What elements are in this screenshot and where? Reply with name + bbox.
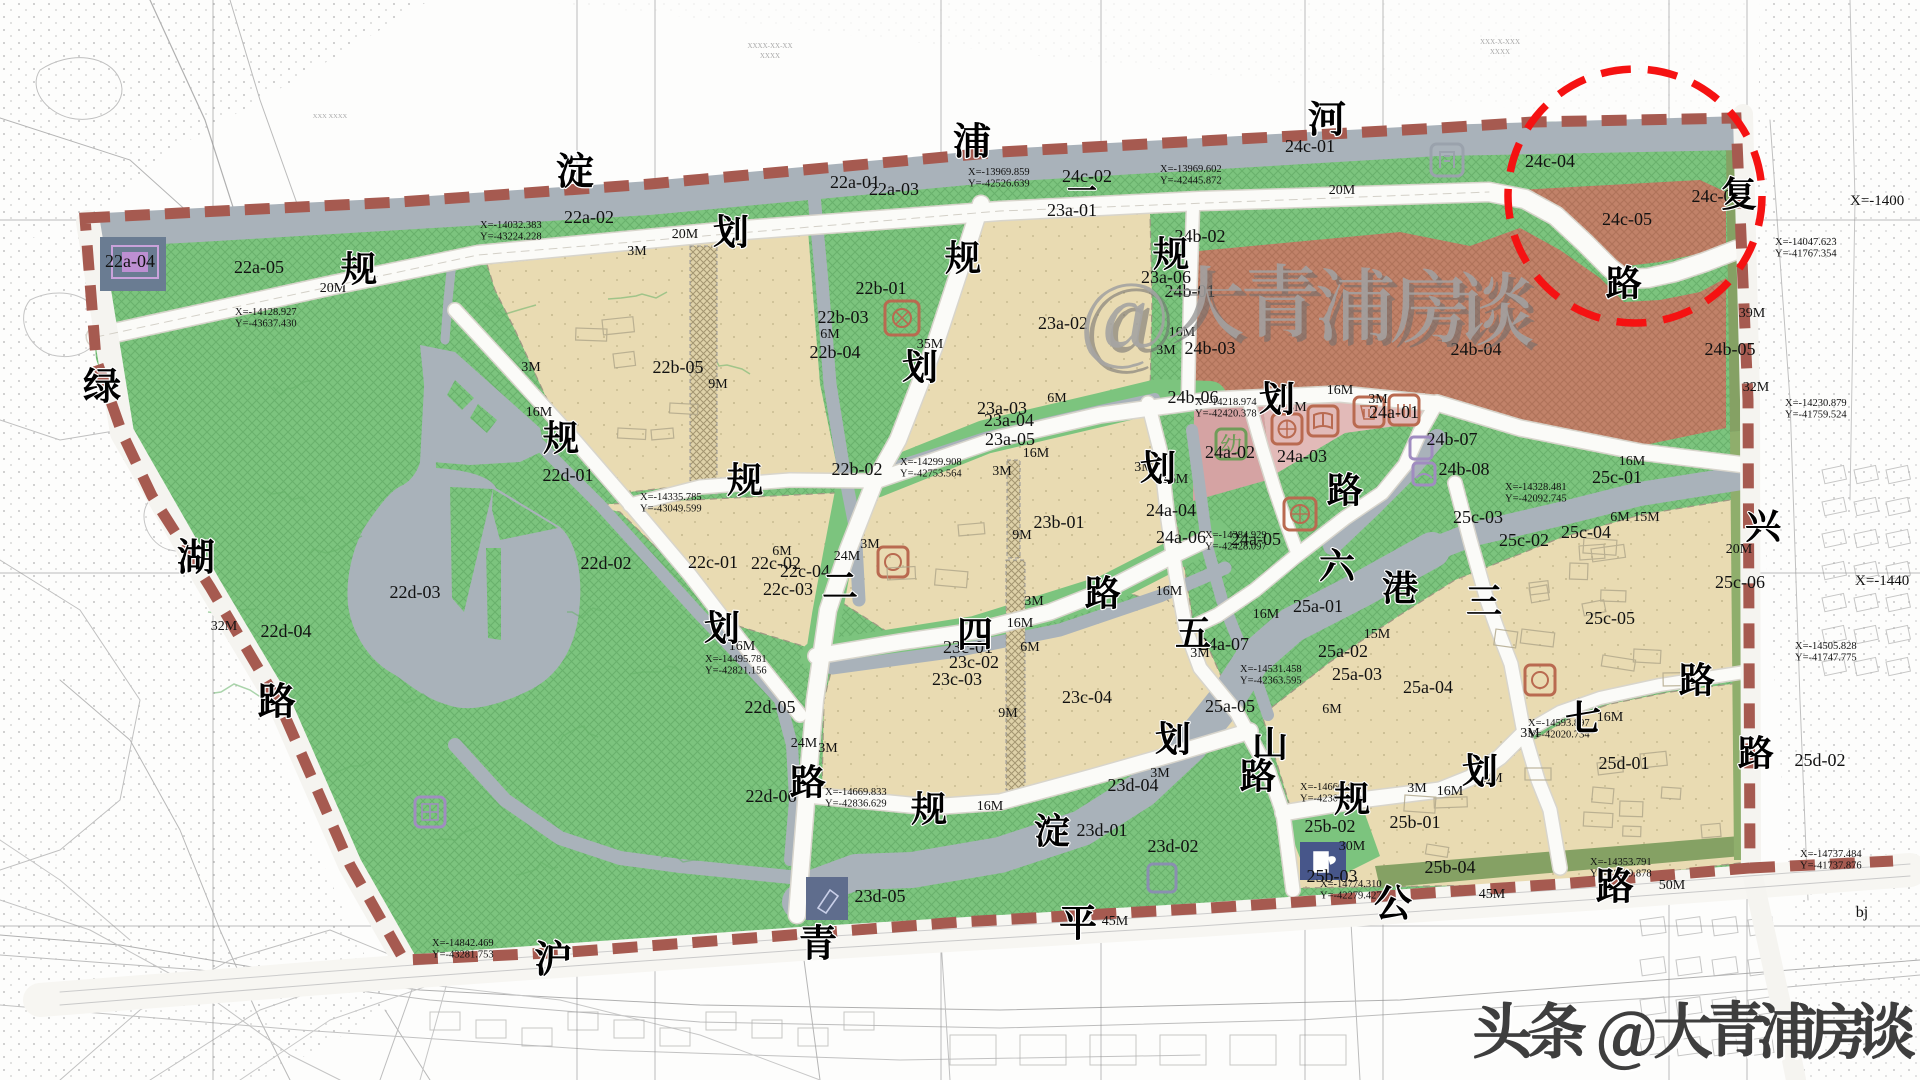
svg-text:X=-13969.859Y=-42526.639: X=-13969.859Y=-42526.639	[968, 167, 1030, 190]
svg-text:22b-01: 22b-01	[856, 278, 907, 298]
svg-text:XXXX-XX-XX: XXXX-XX-XX	[747, 42, 792, 50]
svg-text:25c-06: 25c-06	[1715, 572, 1765, 592]
svg-text:22a-02: 22a-02	[564, 207, 614, 227]
svg-text:X=-14774.310Y=-42279.427: X=-14774.310Y=-42279.427	[1320, 879, 1382, 902]
svg-text:25c-01: 25c-01	[1592, 467, 1642, 487]
svg-text:3M: 3M	[521, 360, 541, 375]
svg-text:22d-04: 22d-04	[261, 621, 312, 641]
svg-text:9M: 9M	[1012, 528, 1032, 543]
svg-text:24b-07: 24b-07	[1427, 429, 1478, 449]
svg-text:9M: 9M	[998, 706, 1018, 721]
svg-text:30M: 30M	[1339, 839, 1366, 854]
svg-text:6M: 6M	[1020, 640, 1040, 655]
svg-text:23a-02: 23a-02	[1038, 313, 1088, 333]
svg-text:25c-02: 25c-02	[1499, 530, 1549, 550]
svg-text:24M: 24M	[791, 736, 818, 751]
svg-text:16M: 16M	[1156, 584, 1183, 599]
svg-text:22b-02: 22b-02	[832, 459, 883, 479]
svg-text:X=-14669.833Y=-42836.629: X=-14669.833Y=-42836.629	[825, 787, 887, 810]
svg-text:25b-01: 25b-01	[1390, 812, 1441, 832]
svg-text:24b-08: 24b-08	[1439, 459, 1490, 479]
svg-text:23b-01: 23b-01	[1034, 512, 1085, 532]
svg-text:16M: 16M	[1023, 446, 1050, 461]
svg-text:16M: 16M	[526, 405, 553, 420]
svg-text:25b-02: 25b-02	[1305, 816, 1356, 836]
svg-text:X=-14384.929Y=-42428.097: X=-14384.929Y=-42428.097	[1205, 530, 1267, 553]
svg-text:6M: 6M	[1322, 702, 1342, 717]
svg-text:X=-14218.974Y=-42420.378: X=-14218.974Y=-42420.378	[1195, 397, 1257, 420]
svg-text:22b-04: 22b-04	[810, 342, 861, 362]
svg-text:3M: 3M	[860, 537, 880, 552]
svg-text:24b-03: 24b-03	[1185, 338, 1236, 358]
svg-text:X=-14047.623Y=-41767.354: X=-14047.623Y=-41767.354	[1775, 237, 1837, 260]
svg-text:45M: 45M	[1479, 887, 1506, 902]
svg-text:22d-01: 22d-01	[543, 465, 594, 485]
svg-text:20M: 20M	[672, 227, 699, 242]
svg-text:16M: 16M	[1437, 784, 1464, 799]
svg-text:24b-05: 24b-05	[1705, 339, 1756, 359]
svg-text:22d-06: 22d-06	[746, 786, 797, 806]
svg-text:XXXX: XXXX	[1490, 48, 1510, 56]
svg-text:X=-14495.781Y=-42821.156: X=-14495.781Y=-42821.156	[705, 654, 767, 677]
svg-text:6M: 6M	[1047, 391, 1067, 406]
svg-text:X=-14737.484Y=-41737.876: X=-14737.484Y=-41737.876	[1800, 849, 1862, 872]
svg-text:X=-14299.908Y=-42753.564: X=-14299.908Y=-42753.564	[900, 457, 962, 480]
svg-text:X=-14032.383Y=-43224.228: X=-14032.383Y=-43224.228	[480, 220, 542, 243]
svg-text:X=-13969.602Y=-42445.872: X=-13969.602Y=-42445.872	[1160, 164, 1222, 187]
svg-text:16M: 16M	[1253, 607, 1280, 622]
svg-text:3M: 3M	[1024, 594, 1044, 609]
svg-text:50M: 50M	[1659, 878, 1686, 893]
svg-text:22b-03: 22b-03	[818, 307, 869, 327]
svg-text:45M: 45M	[1102, 914, 1129, 929]
svg-text:22c-01: 22c-01	[688, 552, 738, 572]
svg-text:25d-02: 25d-02	[1795, 750, 1846, 770]
svg-text:X=-1400: X=-1400	[1850, 193, 1904, 209]
svg-text:25b-04: 25b-04	[1425, 857, 1476, 877]
svg-text:3M: 3M	[1150, 766, 1170, 781]
svg-text:23c-04: 23c-04	[1062, 687, 1112, 707]
svg-text:XXXX: XXXX	[760, 52, 780, 60]
svg-text:25c-04: 25c-04	[1561, 522, 1611, 542]
svg-text:3M: 3M	[627, 244, 647, 259]
svg-text:X=-14335.785Y=-43049.599: X=-14335.785Y=-43049.599	[640, 492, 702, 515]
svg-text:6M: 6M	[772, 544, 792, 559]
svg-text:24M: 24M	[834, 549, 861, 564]
svg-text:22c-03: 22c-03	[763, 579, 813, 599]
svg-text:24a-04: 24a-04	[1146, 500, 1196, 520]
svg-text:35M: 35M	[917, 337, 944, 352]
svg-text:25c-05: 25c-05	[1585, 608, 1635, 628]
svg-text:16M: 16M	[1327, 383, 1354, 398]
svg-text:25a-02: 25a-02	[1318, 641, 1368, 661]
svg-text:3M: 3M	[1368, 392, 1388, 407]
svg-text:23d-02: 23d-02	[1148, 836, 1199, 856]
svg-text:X=-14842.469Y=-43281.753: X=-14842.469Y=-43281.753	[432, 938, 494, 961]
svg-text:X=-14531.458Y=-42363.595: X=-14531.458Y=-42363.595	[1240, 664, 1302, 687]
svg-text:39M: 39M	[1739, 306, 1766, 321]
svg-text:3M: 3M	[818, 741, 838, 756]
svg-text:22d-02: 22d-02	[581, 553, 632, 573]
svg-text:24c-02: 24c-02	[1062, 166, 1112, 186]
svg-text:22d-03: 22d-03	[390, 582, 441, 602]
svg-text:32M: 32M	[211, 619, 238, 634]
svg-text:25a-03: 25a-03	[1332, 664, 1382, 684]
svg-text:16M: 16M	[1007, 616, 1034, 631]
svg-text:3M: 3M	[1407, 781, 1427, 796]
svg-text:20M: 20M	[1726, 542, 1753, 557]
svg-text:16M: 16M	[1597, 710, 1624, 725]
svg-text:23d-05: 23d-05	[855, 886, 906, 906]
svg-text:23d-01: 23d-01	[1077, 820, 1128, 840]
svg-text:25c-03: 25c-03	[1453, 507, 1503, 527]
svg-text:16M: 16M	[977, 799, 1004, 814]
svg-text:X=-1440: X=-1440	[1855, 573, 1909, 589]
svg-text:24c-05: 24c-05	[1602, 209, 1652, 229]
svg-text:bj: bj	[1856, 904, 1868, 921]
svg-text:XXX XXXX: XXX XXXX	[313, 113, 348, 120]
svg-text:22b-05: 22b-05	[653, 357, 704, 377]
svg-text:32M: 32M	[1743, 380, 1770, 395]
svg-text:3M: 3M	[992, 464, 1012, 479]
svg-text:24a-02: 24a-02	[1205, 442, 1255, 462]
svg-text:XXX-X-XXX: XXX-X-XXX	[1480, 38, 1520, 46]
svg-text:25d-01: 25d-01	[1599, 753, 1650, 773]
svg-text:X=-14328.481Y=-42092.745: X=-14328.481Y=-42092.745	[1505, 482, 1567, 505]
svg-text:9M: 9M	[708, 377, 728, 392]
svg-text:22a-04: 22a-04	[105, 251, 155, 271]
svg-text:24a-06: 24a-06	[1156, 527, 1206, 547]
svg-text:3M: 3M	[1190, 646, 1210, 661]
svg-text:X=-14505.828Y=-41747.775: X=-14505.828Y=-41747.775	[1795, 641, 1857, 664]
svg-text:24c-04: 24c-04	[1525, 151, 1575, 171]
svg-text:25a-04: 25a-04	[1403, 677, 1453, 697]
svg-text:20M: 20M	[1329, 183, 1356, 198]
svg-text:X=-14230.879Y=-41759.524: X=-14230.879Y=-41759.524	[1785, 398, 1847, 421]
svg-text:23c-03: 23c-03	[932, 669, 982, 689]
svg-text:24c-01: 24c-01	[1285, 136, 1335, 156]
svg-text:22d-05: 22d-05	[745, 697, 796, 717]
svg-text:24a-03: 24a-03	[1277, 446, 1327, 466]
svg-text:6M: 6M	[820, 327, 840, 342]
svg-text:X=-14128.927Y=-43637.430: X=-14128.927Y=-43637.430	[235, 307, 297, 330]
svg-text:25a-05: 25a-05	[1205, 696, 1255, 716]
svg-text:22c-04: 22c-04	[780, 561, 830, 581]
svg-text:23a-01: 23a-01	[1047, 200, 1097, 220]
svg-text:16M: 16M	[1619, 454, 1646, 469]
svg-text:22a-03: 22a-03	[869, 179, 919, 199]
svg-text:22a-05: 22a-05	[234, 257, 284, 277]
svg-text:25a-01: 25a-01	[1293, 596, 1343, 616]
svg-text:23a-04: 23a-04	[984, 410, 1034, 430]
svg-text:15M: 15M	[1364, 627, 1391, 642]
svg-text:6M 15M: 6M 15M	[1610, 510, 1660, 525]
